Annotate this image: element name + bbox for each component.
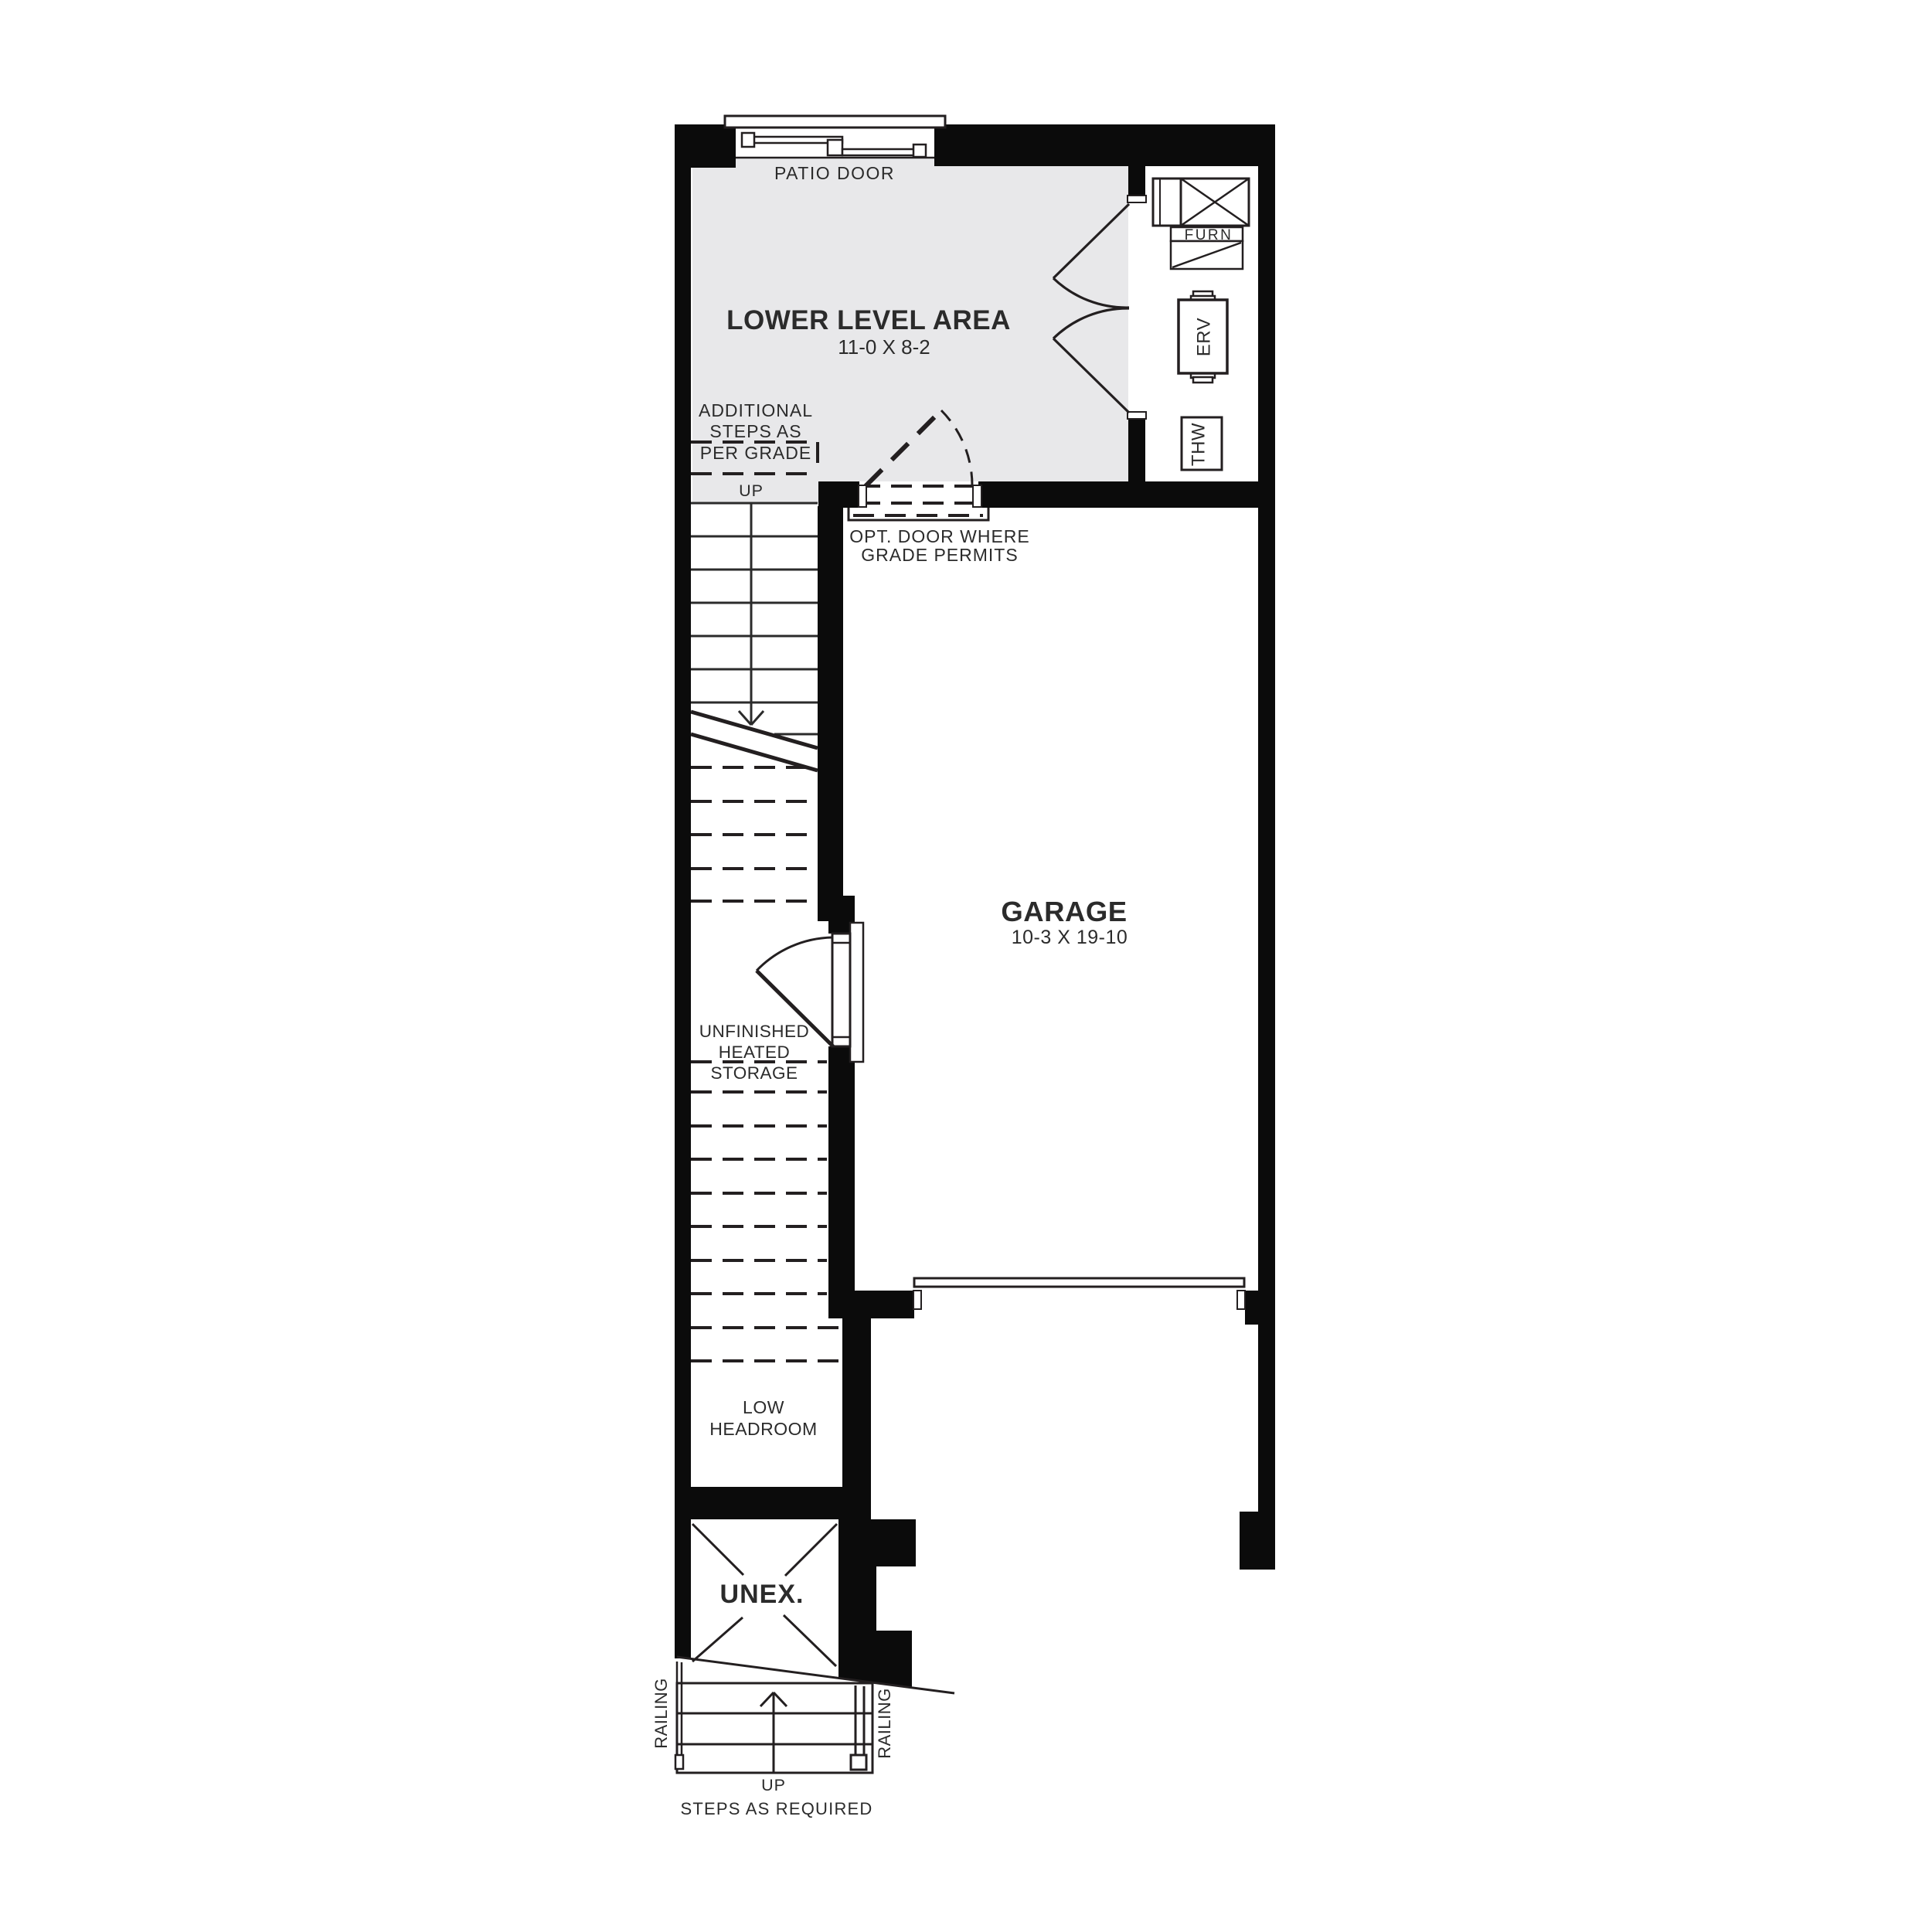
svg-text:ERV: ERV [1193,318,1214,356]
svg-text:RAILING: RAILING [875,1688,894,1759]
svg-text:LOW: LOW [743,1397,784,1417]
svg-text:PER GRADE: PER GRADE [700,443,811,463]
svg-text:LOWER LEVEL AREA: LOWER LEVEL AREA [726,305,1011,335]
svg-text:STEPS AS REQUIRED: STEPS AS REQUIRED [680,1799,872,1818]
svg-text:GARAGE: GARAGE [1001,896,1127,927]
svg-text:11-0 X 8-2: 11-0 X 8-2 [838,335,930,359]
svg-text:ADDITIONAL: ADDITIONAL [699,400,813,420]
svg-text:HEADROOM: HEADROOM [709,1419,817,1439]
svg-text:UNFINISHED: UNFINISHED [699,1022,810,1041]
svg-text:RAILING: RAILING [651,1678,671,1749]
svg-text:STEPS AS: STEPS AS [709,421,801,441]
svg-text:GRADE PERMITS: GRADE PERMITS [861,545,1018,565]
svg-text:UP: UP [761,1776,786,1794]
svg-text:OPT. DOOR WHERE: OPT. DOOR WHERE [849,526,1030,546]
svg-text:FURN: FURN [1185,227,1233,243]
svg-text:STORAGE: STORAGE [710,1063,798,1083]
svg-text:10-3 X 19-10: 10-3 X 19-10 [1012,927,1128,948]
svg-text:UP: UP [739,481,764,500]
svg-text:PATIO DOOR: PATIO DOOR [774,163,895,183]
svg-text:HEATED: HEATED [719,1043,791,1062]
svg-text:THW: THW [1188,423,1209,466]
svg-text:UNEX.: UNEX. [720,1580,804,1609]
